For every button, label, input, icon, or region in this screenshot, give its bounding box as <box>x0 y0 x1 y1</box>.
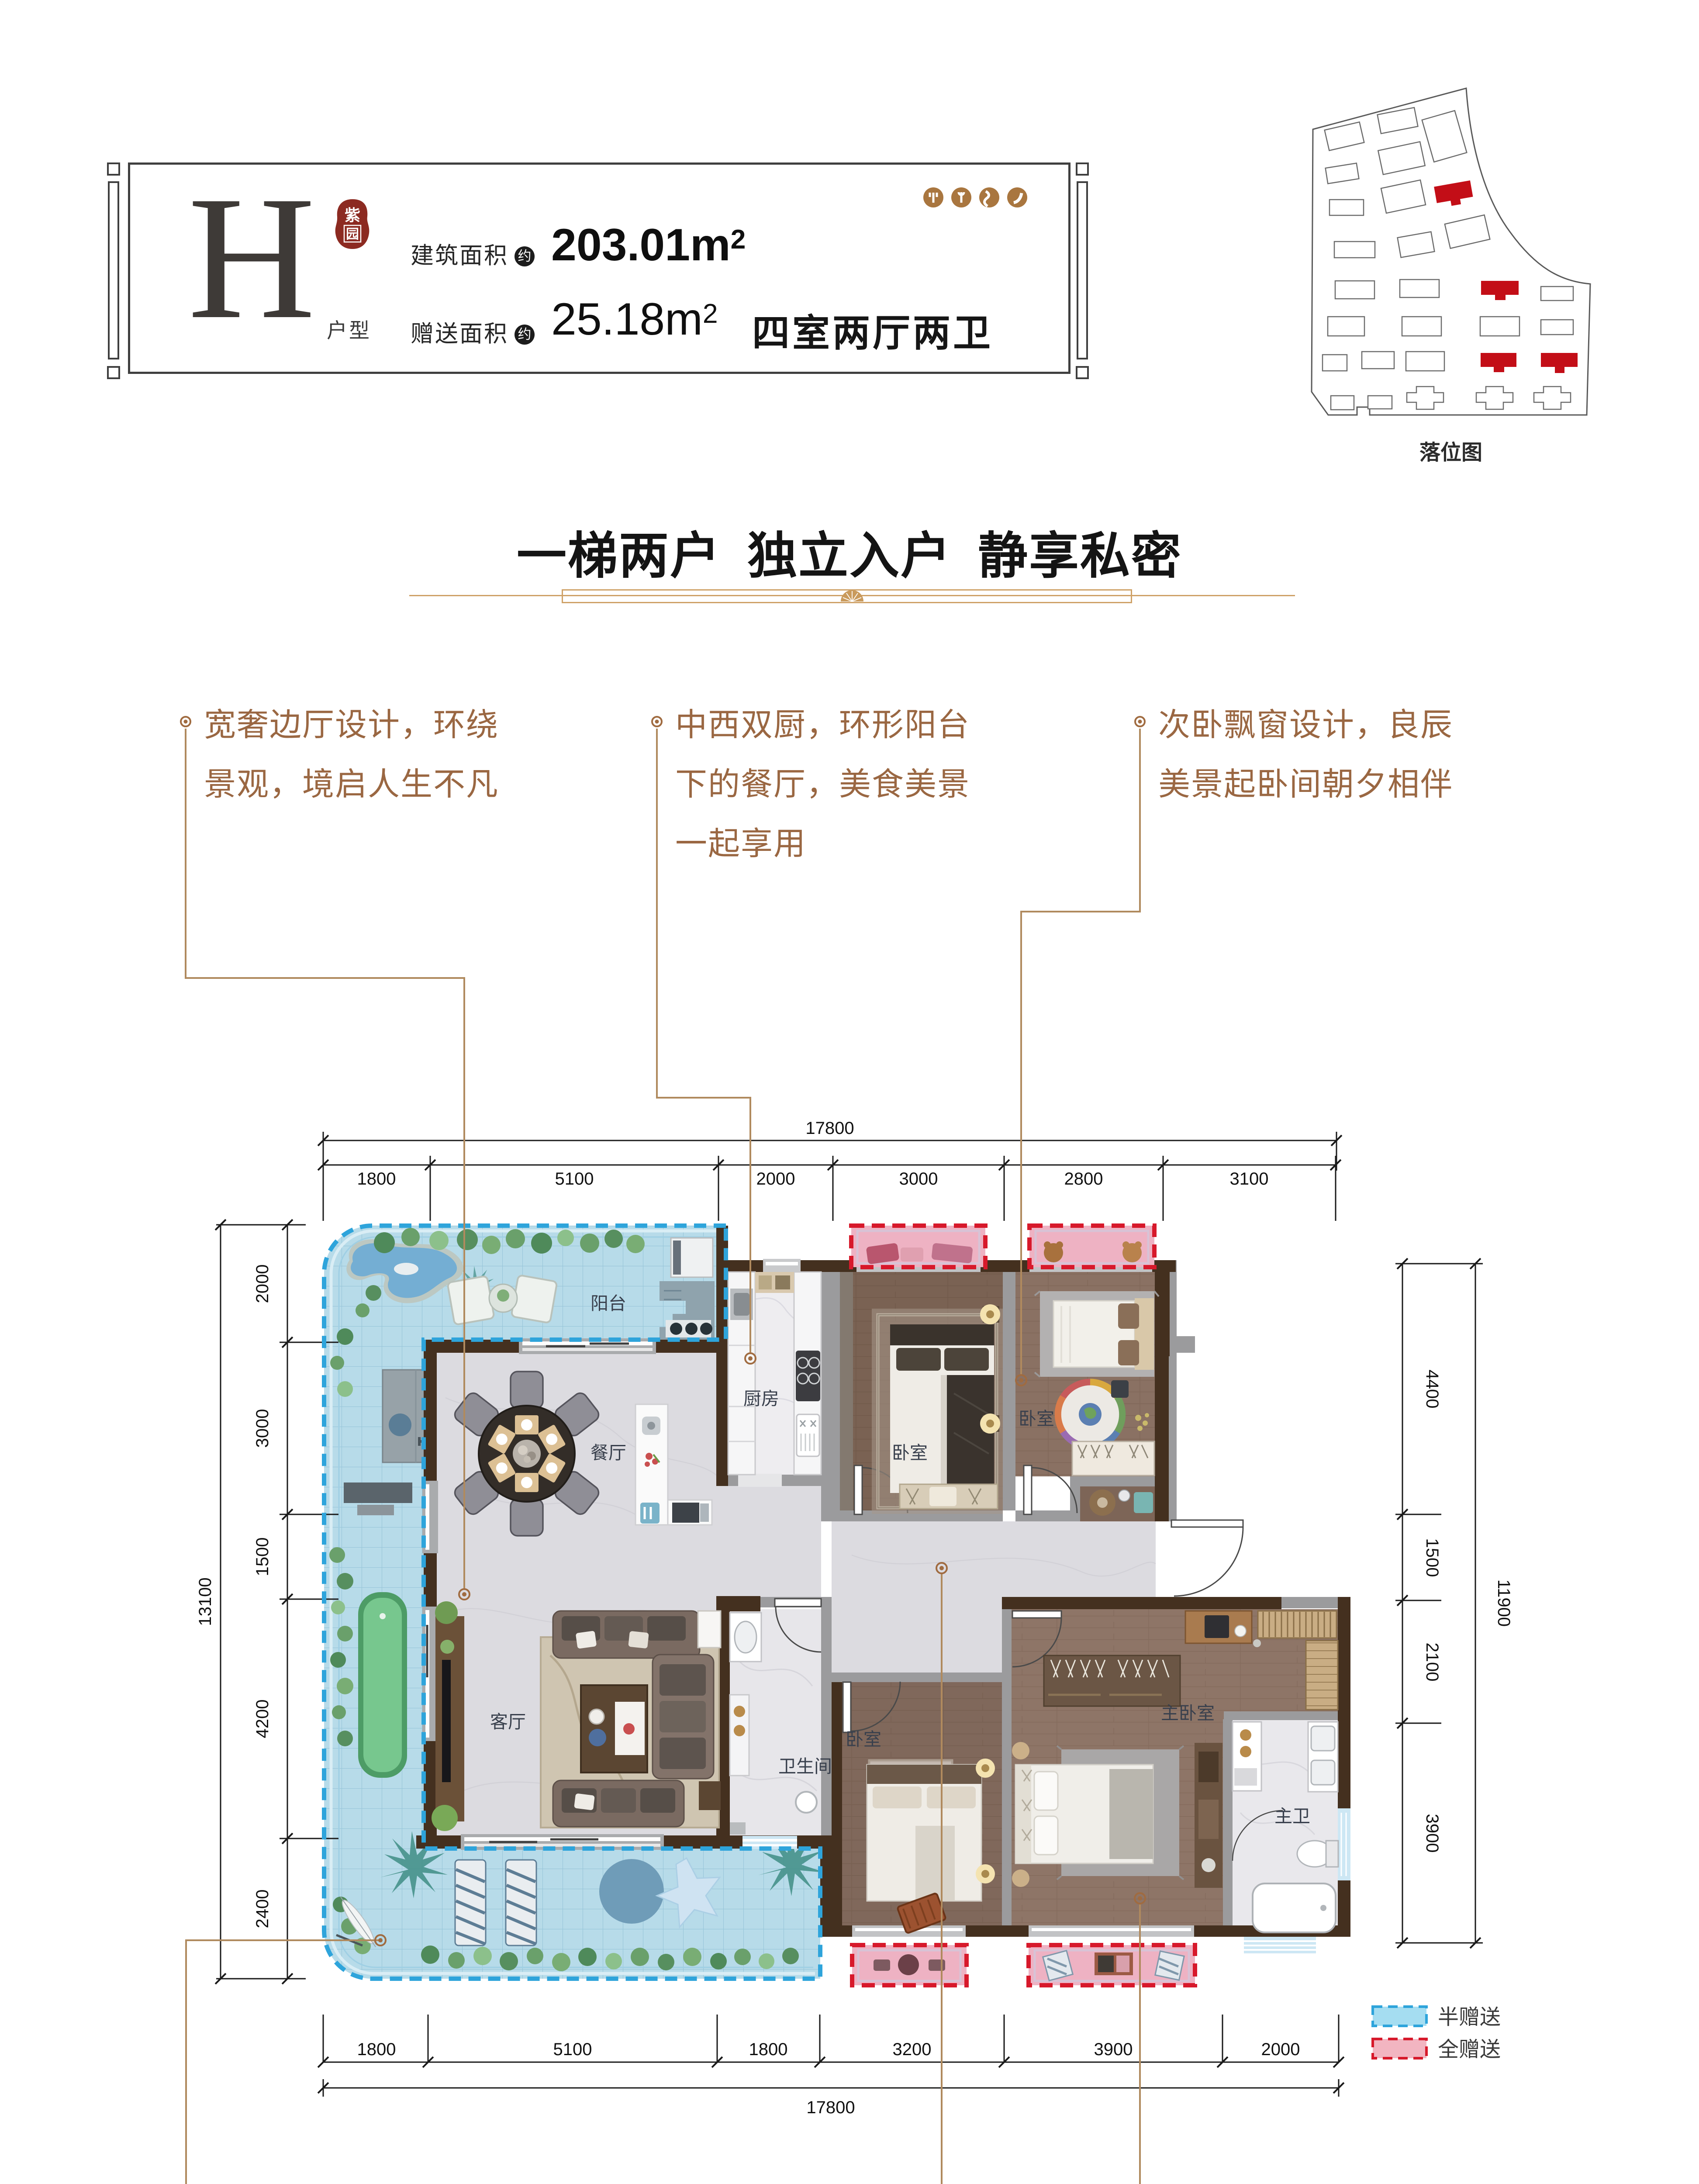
svg-text:客厅: 客厅 <box>490 1712 526 1732</box>
svg-text:5100: 5100 <box>553 2040 592 2059</box>
svg-text:2000: 2000 <box>253 1265 272 1303</box>
svg-text:2000: 2000 <box>1261 2040 1300 2059</box>
svg-text:主卧室: 主卧室 <box>1161 1703 1215 1723</box>
svg-text:主卫: 主卫 <box>1274 1806 1310 1826</box>
svg-text:全赠送: 全赠送 <box>1438 2038 1501 2061</box>
svg-text:2000: 2000 <box>756 1169 795 1189</box>
svg-text:17800: 17800 <box>805 1119 854 1138</box>
svg-text:1800: 1800 <box>749 2040 788 2059</box>
svg-text:4200: 4200 <box>253 1700 272 1738</box>
svg-text:1500: 1500 <box>1423 1538 1442 1577</box>
svg-text:3100: 3100 <box>1230 1169 1269 1189</box>
svg-text:卧室: 卧室 <box>892 1443 928 1463</box>
svg-text:11900: 11900 <box>1494 1579 1513 1627</box>
svg-text:阳台: 阳台 <box>591 1293 626 1313</box>
svg-text:卫生间: 卫生间 <box>778 1756 832 1776</box>
svg-text:1500: 1500 <box>253 1538 272 1576</box>
svg-text:3200: 3200 <box>893 2040 932 2059</box>
svg-text:13100: 13100 <box>196 1577 215 1626</box>
svg-text:2400: 2400 <box>253 1890 272 1928</box>
svg-text:4400: 4400 <box>1423 1370 1442 1409</box>
svg-text:3000: 3000 <box>899 1169 938 1189</box>
svg-text:2100: 2100 <box>1423 1643 1442 1682</box>
svg-text:17800: 17800 <box>806 2098 855 2117</box>
svg-text:2800: 2800 <box>1064 1169 1103 1189</box>
svg-text:3900: 3900 <box>1423 1814 1442 1853</box>
svg-text:1800: 1800 <box>357 2040 396 2059</box>
svg-text:3000: 3000 <box>253 1409 272 1448</box>
svg-text:5100: 5100 <box>555 1169 594 1189</box>
svg-text:卧室: 卧室 <box>846 1729 881 1749</box>
svg-text:1800: 1800 <box>357 1169 396 1189</box>
svg-text:半赠送: 半赠送 <box>1438 2006 1501 2029</box>
svg-text:紫: 紫 <box>345 206 360 224</box>
svg-text:卧室: 卧室 <box>1019 1409 1054 1429</box>
svg-text:园: 园 <box>346 227 359 242</box>
svg-text:3900: 3900 <box>1094 2040 1133 2059</box>
svg-text:餐厅: 餐厅 <box>591 1443 626 1463</box>
svg-text:厨房: 厨房 <box>743 1389 779 1409</box>
svg-text:落位图: 落位图 <box>1419 441 1482 464</box>
